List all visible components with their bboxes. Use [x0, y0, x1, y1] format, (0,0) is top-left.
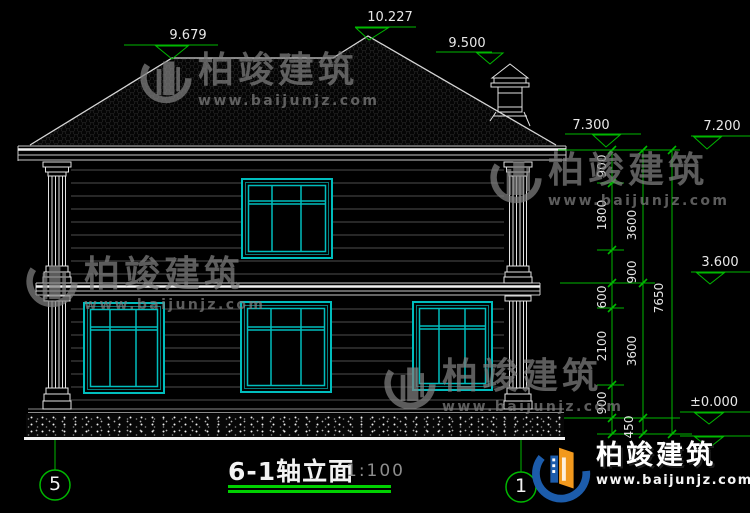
dim-label: 3600	[625, 210, 639, 241]
watermark-name: 柏竣建筑	[84, 256, 265, 294]
watermark-site: www.baijunjz.com	[84, 297, 265, 313]
watermark-logo-icon	[382, 358, 438, 418]
dim-label: 600	[595, 286, 609, 309]
window-upper-center	[242, 179, 332, 258]
watermark-site: www.baijunjz.com	[198, 93, 379, 109]
watermark: 柏竣建筑 www.baijunjz.com	[488, 152, 729, 212]
level-label-ground: ±0.000	[684, 395, 744, 410]
watermark-name: 柏竣建筑	[548, 152, 729, 190]
dim-label-total: 7650	[652, 283, 666, 314]
ground-baseline	[24, 437, 565, 440]
level-label-ridge-main: 10.227	[358, 10, 422, 25]
watermark-logo-icon	[138, 52, 194, 112]
level-label-chimney: 9.500	[439, 36, 495, 51]
level-label-eave: 7.300	[563, 118, 619, 133]
brand-name: 柏竣建筑	[596, 440, 750, 472]
brand-site: www.baijunjz.com	[596, 473, 750, 488]
chimney	[490, 64, 530, 126]
watermark-name: 柏竣建筑	[442, 358, 623, 396]
brand-logo: 柏竣建筑 www.baijunjz.com	[530, 440, 750, 504]
dim-label: 900	[625, 261, 639, 284]
watermark-site: www.baijunjz.com	[442, 399, 623, 415]
axis-number-right: 1	[515, 475, 527, 497]
watermark: 柏竣建筑 www.baijunjz.com	[138, 52, 379, 112]
level-label-floor2: 3.600	[692, 255, 748, 270]
watermark-logo-icon	[488, 152, 544, 212]
watermark-name: 柏竣建筑	[198, 52, 379, 90]
drawing-scale: 1:100	[346, 461, 405, 481]
watermark-logo-icon	[24, 256, 80, 316]
dim-label: 450	[622, 416, 636, 439]
watermark: 柏竣建筑 www.baijunjz.com	[24, 256, 265, 316]
watermark-site: www.baijunjz.com	[548, 193, 729, 209]
watermark: 柏竣建筑 www.baijunjz.com	[382, 358, 623, 418]
drawing-title: 6-1轴立面	[228, 452, 354, 488]
dim-label: 3600	[625, 336, 639, 367]
level-label-eave-struct: 7.200	[694, 119, 750, 134]
title-underline	[228, 490, 391, 493]
brand-logo-icon	[530, 440, 592, 504]
eave-cornice	[18, 146, 566, 161]
axis-number-left: 5	[49, 473, 61, 495]
elevation-drawing-canvas: 9.679 10.227 9.500 7.300 7.200 3.600 ±0.…	[0, 0, 750, 513]
window-ground-left	[84, 303, 164, 393]
level-label-ridge-left: 9.679	[158, 28, 218, 43]
title-underline	[228, 485, 391, 488]
